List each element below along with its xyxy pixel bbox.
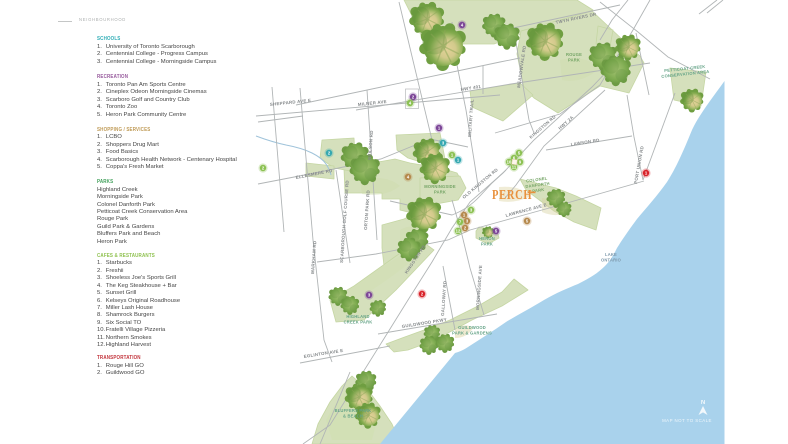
svg-text:GALLOWAY RD: GALLOWAY RD — [440, 281, 447, 316]
svg-text:11: 11 — [512, 165, 517, 170]
svg-text:NEILSON RD: NEILSON RD — [367, 130, 374, 160]
svg-text:ROUGEPARK: ROUGEPARK — [566, 52, 582, 62]
svg-text:EGLINTON AVE E: EGLINTON AVE E — [303, 348, 343, 359]
svg-text:12: 12 — [456, 229, 461, 234]
svg-text:HIGHLANDCREEK PARK: HIGHLANDCREEK PARK — [344, 314, 373, 324]
svg-text:ORTON PARK RD: ORTON PARK RD — [363, 190, 371, 230]
svg-text:N: N — [701, 400, 705, 406]
svg-text:GUILDWOODPARK & GARDENS: GUILDWOODPARK & GARDENS — [452, 325, 492, 335]
svg-text:MAP NOT TO SCALE: MAP NOT TO SCALE — [662, 418, 712, 423]
svg-text:LAWSON RD: LAWSON RD — [570, 137, 600, 146]
svg-text:MILITARY TRAIL: MILITARY TRAIL — [467, 99, 475, 137]
svg-text:SHEPPARD AVE E: SHEPPARD AVE E — [270, 98, 312, 107]
svg-text:KINGSTON RD: KINGSTON RD — [528, 114, 556, 140]
svg-text:PERCH: PERCH — [492, 187, 532, 203]
svg-text:HERONPARK: HERONPARK — [479, 236, 495, 246]
